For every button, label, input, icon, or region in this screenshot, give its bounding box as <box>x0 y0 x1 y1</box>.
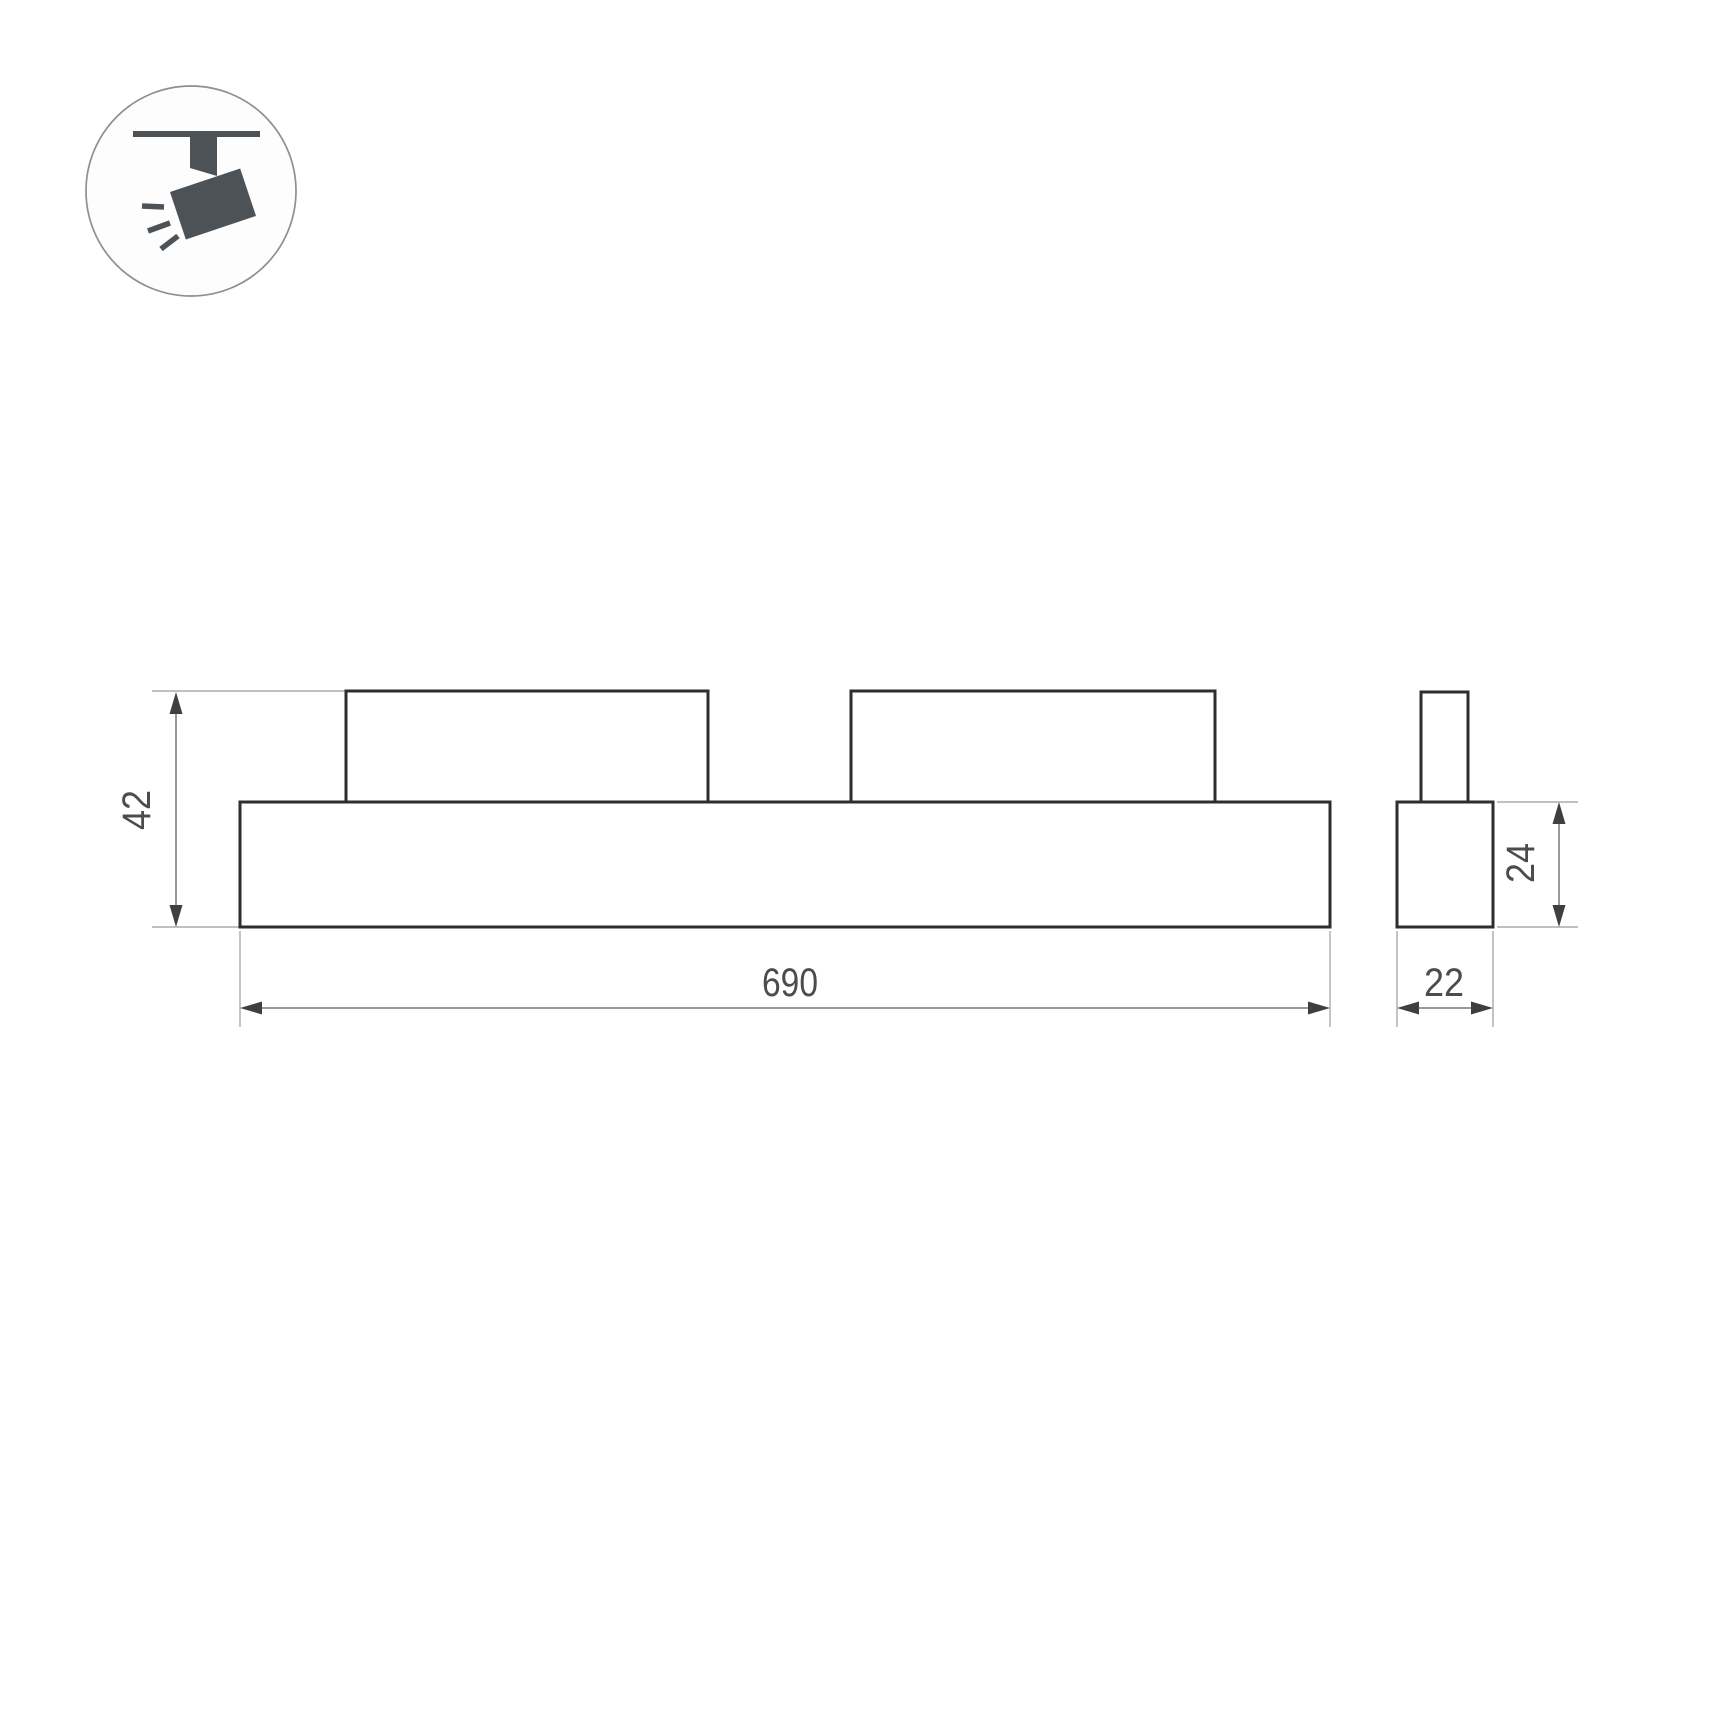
arrow-right-icon <box>1471 1002 1493 1015</box>
front-base-body <box>240 802 1330 927</box>
front-view <box>240 691 1330 927</box>
dimension-label-24: 24 <box>1499 843 1543 883</box>
track-spotlight-icon <box>86 86 296 296</box>
dimension-label-42: 42 <box>115 790 159 830</box>
dim-side-width: 22 <box>1397 931 1493 1027</box>
icon-light-ray <box>142 206 164 207</box>
side-body <box>1397 802 1493 927</box>
arrow-up-icon <box>1553 802 1566 824</box>
side-view <box>1397 692 1493 927</box>
front-module-right <box>851 691 1215 802</box>
arrow-down-icon <box>1553 905 1566 927</box>
arrow-left-icon <box>240 1002 262 1015</box>
dimension-label-690: 690 <box>762 961 818 1005</box>
front-module-left <box>346 691 708 802</box>
dim-length: 690 <box>240 931 1330 1027</box>
arrow-left-icon <box>1397 1002 1419 1015</box>
drawing-page: 42 690 24 22 <box>0 0 1720 1720</box>
arrow-right-icon <box>1308 1002 1330 1015</box>
technical-drawing-canvas: 42 690 24 22 <box>0 0 1720 1720</box>
dim-side-height: 24 <box>1497 802 1578 927</box>
dimension-label-22: 22 <box>1424 961 1464 1005</box>
icon-ceiling-bar <box>133 131 260 137</box>
arrow-up-icon <box>170 692 183 714</box>
side-connector-stem <box>1421 692 1468 804</box>
arrow-down-icon <box>170 905 183 927</box>
